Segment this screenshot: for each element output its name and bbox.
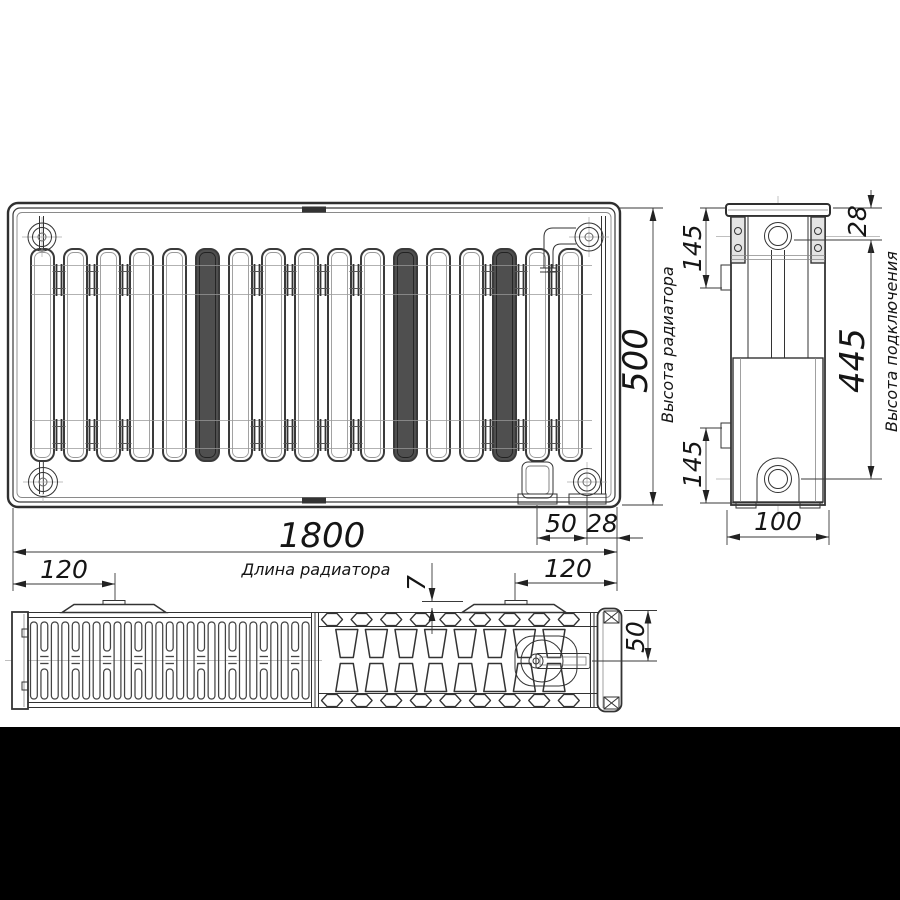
dim-1800-label: Длина радиатора	[241, 560, 391, 579]
dim-bracket-145-bottom: 145	[678, 428, 733, 503]
side-lower-panel	[733, 358, 823, 502]
end-bracket-left	[12, 612, 28, 709]
hex-bump	[351, 695, 372, 707]
hex-bump	[558, 695, 579, 707]
hex-bump	[440, 695, 461, 707]
technical-drawing-page: 500 Высота радиатора 145 145 28 445 Высо…	[0, 0, 900, 900]
front-fins	[31, 249, 582, 461]
mount-clip-left	[62, 601, 166, 613]
dim-height-label: Высота радиатора	[658, 266, 677, 423]
dim-depth-100: 100	[727, 507, 829, 545]
top-clip-mark	[302, 207, 326, 213]
hex-bump	[410, 695, 431, 707]
dim-clip-120-right: 120	[515, 554, 617, 601]
grille-slat	[72, 622, 79, 651]
hex-bump	[410, 614, 431, 626]
grille-slat	[166, 669, 173, 699]
convector-fin-upper	[425, 630, 447, 658]
bracket-tab-top	[721, 265, 731, 290]
wall-bracket-left	[731, 217, 745, 263]
grille-slat	[198, 669, 205, 699]
convector-fin-lower	[336, 664, 358, 692]
bottom-view	[5, 601, 622, 712]
grille-slat	[135, 669, 142, 699]
dim-445-label: Высота подключения	[882, 251, 900, 432]
grille-slat	[104, 669, 111, 699]
dim-100-value: 100	[754, 507, 802, 536]
hex-bump	[470, 695, 491, 707]
hex-bump	[470, 614, 491, 626]
dim-length-1800: 1800 Длина радиатора	[13, 507, 617, 591]
convector-fin-upper	[336, 630, 358, 658]
letterbox-band	[0, 727, 900, 900]
hex-bump	[558, 614, 579, 626]
mount-clip-right	[462, 601, 566, 613]
convector-fin-lower	[484, 664, 506, 692]
grille-slat	[41, 669, 48, 699]
end-cap-right	[598, 609, 622, 712]
dim-50-value: 50	[545, 509, 577, 538]
hex-bump	[440, 614, 461, 626]
front-view	[8, 203, 620, 507]
convector-fin-upper	[513, 630, 535, 658]
grille-slat	[292, 622, 299, 651]
convector-fin-lower	[513, 664, 535, 692]
convector-fin-lower	[425, 664, 447, 692]
hex-bump-rows	[322, 614, 580, 707]
radiator-drawing: 500 Высота радиатора 145 145 28 445 Высо…	[0, 0, 900, 900]
dim-1800-value: 1800	[279, 516, 366, 556]
hex-bump	[529, 614, 550, 626]
dim-bracket-145-top: 145	[678, 208, 726, 288]
bracket-tab-bottom	[721, 423, 731, 448]
convector-fin-lower	[365, 664, 387, 692]
grille-slat	[229, 622, 236, 651]
hex-bump	[322, 614, 343, 626]
grille-slat	[260, 669, 267, 699]
grille-slat	[41, 622, 48, 651]
dim-50r-value: 50	[621, 621, 650, 653]
hex-bump	[381, 614, 402, 626]
dim-28-value: 28	[843, 205, 872, 237]
hex-bump	[322, 695, 343, 707]
dim-clip-120-left: 120	[13, 555, 115, 601]
dim-145-bottom-value: 145	[678, 440, 707, 488]
grille-slat	[198, 622, 205, 651]
dim-120-left-value: 120	[40, 555, 88, 584]
grille-slat	[135, 622, 142, 651]
dim-120-right-value: 120	[544, 554, 592, 583]
dim-7-value: 7	[402, 575, 431, 591]
convector-fin-upper	[484, 630, 506, 658]
grille-slat	[229, 669, 236, 699]
grille-slat	[166, 622, 173, 651]
convector-fin-lower	[454, 664, 476, 692]
convector-fin-upper	[365, 630, 387, 658]
grille-slat	[104, 622, 111, 651]
grille-slat	[260, 622, 267, 651]
dim-height-value: 500	[616, 328, 656, 393]
hex-bump	[351, 614, 372, 626]
dim-28b-value: 28	[586, 509, 618, 538]
convector-fin-lower	[395, 664, 417, 692]
dim-445-value: 445	[833, 328, 873, 393]
convector-fin-upper	[454, 630, 476, 658]
dim-height-500: 500 Высота радиатора	[616, 208, 677, 505]
bottom-clip-mark	[302, 498, 326, 504]
hex-bump	[499, 695, 520, 707]
hex-bump	[529, 695, 550, 707]
dim-145-top-value: 145	[678, 224, 707, 272]
hex-bump	[499, 614, 520, 626]
convector-fins	[336, 630, 565, 692]
grille-slat	[292, 669, 299, 699]
convector-fin-upper	[395, 630, 417, 658]
hex-bump	[381, 695, 402, 707]
grille-slat	[72, 669, 79, 699]
